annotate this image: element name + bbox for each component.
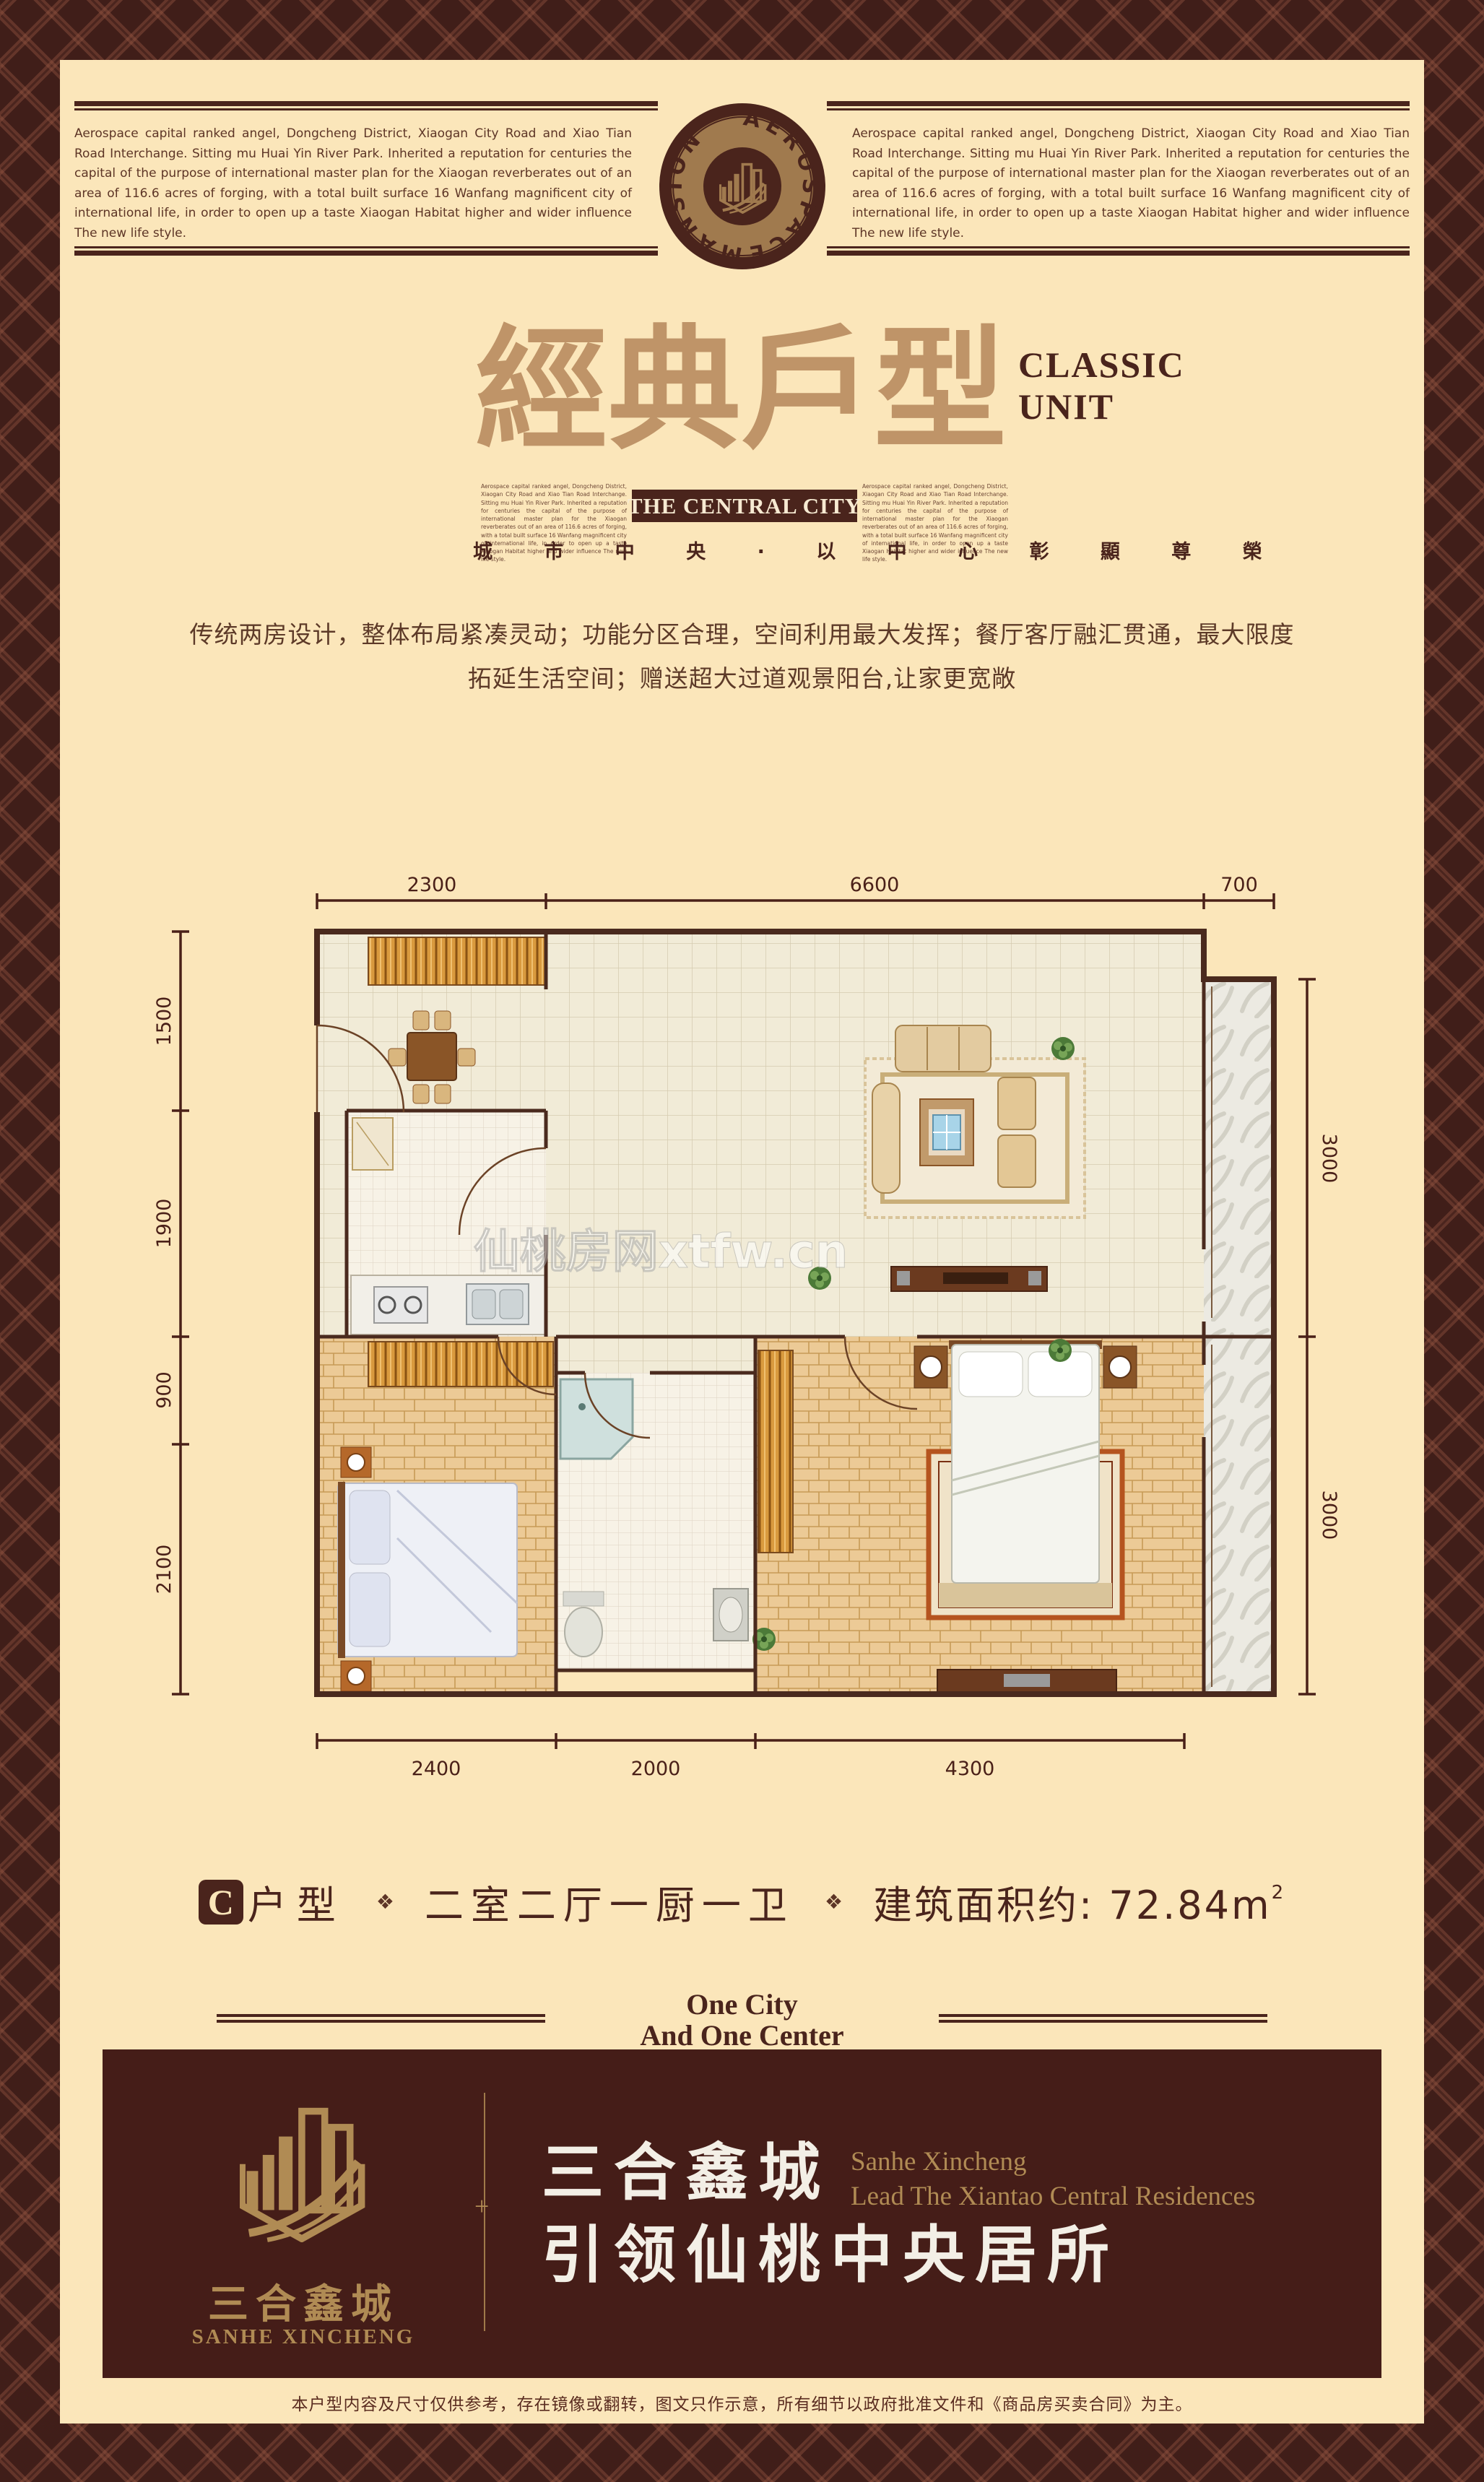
description-line2: 拓延生活空间；赠送超大过道观景阳台,让家更宽敞 xyxy=(60,656,1424,700)
floorplan: 仙桃房网xtfw.cn 2300 6600 700 1500 1900 900 … xyxy=(152,845,1343,1791)
divider-ornament: + xyxy=(474,2191,489,2221)
watermark: 仙桃房网xtfw.cn xyxy=(474,1225,849,1279)
shower xyxy=(560,1379,633,1459)
svg-text:6600: 6600 xyxy=(850,874,900,896)
sofa-chair-1 xyxy=(998,1077,1036,1129)
area-superscript: 2 xyxy=(1272,1882,1286,1904)
title-en: CLASSIC UNIT xyxy=(1018,344,1185,428)
brand-name-cjk: 三合鑫城 xyxy=(181,2272,426,2330)
header-rule-bottom-left xyxy=(74,246,658,256)
sofa-main xyxy=(895,1025,991,1072)
page-title: 經典戶型 xyxy=(475,324,1007,456)
slogan-en-line2: Lead The Xiantao Central Residences xyxy=(851,2179,1255,2214)
toilet xyxy=(565,1607,602,1657)
slogan-cjk-line1: 三合鑫城 xyxy=(542,2142,830,2204)
entry-closet xyxy=(368,937,546,985)
unit-type-badge: C xyxy=(199,1880,243,1925)
stove xyxy=(374,1287,428,1323)
header-rule-bottom-right xyxy=(827,246,1410,256)
svg-text:2300: 2300 xyxy=(407,874,457,896)
central-city-banner: THE CENTRAL CITY xyxy=(632,490,857,522)
brand-banner: 三合鑫城 SANHE XINCHENG + 三合鑫城 Sanhe Xinchen… xyxy=(103,2049,1381,2378)
svg-text:2100: 2100 xyxy=(153,1545,175,1594)
unit-type-label: 户型 xyxy=(248,1873,346,1930)
banner-slogan: 三合鑫城 Sanhe Xincheng Lead The Xiantao Cen… xyxy=(542,2142,1255,2286)
tagline-line1: One City xyxy=(0,1989,1484,2020)
header-rule-top-right xyxy=(827,101,1410,110)
unit-rooms: 二室二厅一厨一卫 xyxy=(425,1873,794,1930)
subtitle-cjk: 城 市 中 央 · 以 中 心 彰 顯 尊 榮 xyxy=(473,536,1285,564)
master-wardrobe xyxy=(758,1350,793,1553)
unit-info-row: C 户型 ❖ 二室二厅一厨一卫 ❖ 建筑面积约: 72.84m2 xyxy=(0,1873,1484,1930)
slogan-en: Sanhe Xincheng Lead The Xiantao Central … xyxy=(851,2145,1255,2214)
toilet-tank xyxy=(563,1592,604,1606)
sofa-chair-2 xyxy=(998,1135,1036,1187)
svg-text:2400: 2400 xyxy=(412,1758,461,1780)
header-rule-top-left xyxy=(74,101,658,110)
diamond-ornament-2: ❖ xyxy=(825,1890,843,1914)
aerospace-mansion-seal: AEROSPACEMANSION xyxy=(656,100,829,273)
description: 传统两房设计，整体布局紧凑灵动；功能分区合理，空间利用最大发挥；餐厅客厅融汇贯通… xyxy=(60,612,1424,700)
flyer-frame: Aerospace capital ranked angel, Dongchen… xyxy=(0,0,1484,2482)
sofa-chaise xyxy=(872,1083,900,1193)
svg-text:2000: 2000 xyxy=(631,1758,681,1780)
svg-text:3000: 3000 xyxy=(1318,1490,1340,1540)
diamond-ornament-1: ❖ xyxy=(376,1890,394,1914)
title-en-line2: UNIT xyxy=(1018,386,1185,428)
tagline: One City And One Center xyxy=(0,1989,1484,2051)
svg-text:1900: 1900 xyxy=(153,1199,175,1249)
disclaimer: 本户型内容及尺寸仅供参考，存在镜像或翻转，图文只作示意，所有细节以政府批准文件和… xyxy=(0,2390,1484,2415)
unit-area: 建筑面积约: 72.84m2 xyxy=(873,1873,1285,1930)
title-en-line1: CLASSIC xyxy=(1018,344,1185,386)
dining-table xyxy=(407,1033,456,1080)
tagline-line2: And One Center xyxy=(0,2020,1484,2051)
brand-name-en: SANHE XINCHENG xyxy=(181,2325,426,2349)
balcony-bottom-floor xyxy=(1204,1337,1274,1694)
brand-logo xyxy=(240,2081,366,2265)
slogan-cjk-line2: 引领仙桃中央居所 xyxy=(542,2224,1255,2286)
header-paragraph-right: Aerospace capital ranked angel, Dongchen… xyxy=(852,124,1410,243)
description-line1: 传统两房设计，整体布局紧凑灵动；功能分区合理，空间利用最大发挥；餐厅客厅融汇贯通… xyxy=(60,612,1424,656)
header-paragraph-left: Aerospace capital ranked angel, Dongchen… xyxy=(74,124,632,243)
svg-text:900: 900 xyxy=(153,1371,175,1409)
bedroom2-wardrobe xyxy=(368,1342,553,1387)
svg-text:3000: 3000 xyxy=(1318,1134,1340,1184)
svg-text:4300: 4300 xyxy=(945,1758,995,1780)
balcony-top-floor xyxy=(1204,979,1274,1337)
svg-text:1500: 1500 xyxy=(153,997,175,1046)
svg-text:700: 700 xyxy=(1220,874,1258,896)
slogan-en-line1: Sanhe Xincheng xyxy=(851,2145,1255,2179)
